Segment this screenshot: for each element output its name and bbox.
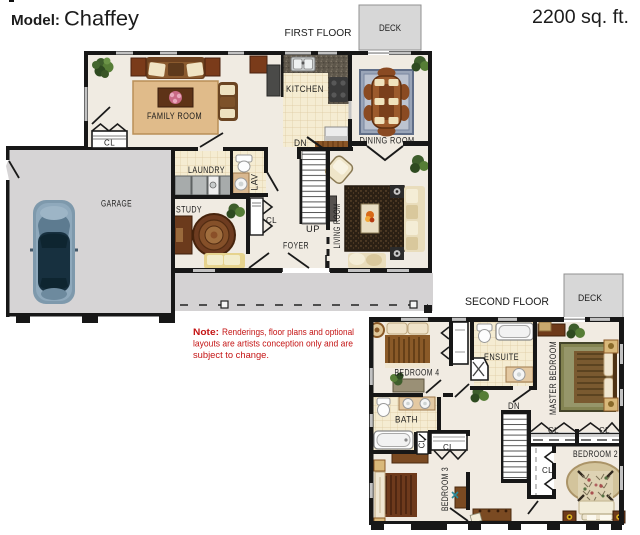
svg-text:subject to change.: subject to change. bbox=[193, 350, 269, 360]
svg-text:STUDY: STUDY bbox=[176, 205, 202, 215]
svg-text:FOYER: FOYER bbox=[283, 241, 309, 251]
svg-text:KITCHEN: KITCHEN bbox=[286, 84, 324, 94]
svg-text:CL: CL bbox=[542, 466, 553, 475]
svg-text:DECK: DECK bbox=[379, 23, 401, 33]
svg-text:LAUNDRY: LAUNDRY bbox=[188, 165, 225, 175]
svg-text:MASTER BEDROOM: MASTER BEDROOM bbox=[548, 341, 558, 415]
svg-text:SECOND FLOOR: SECOND FLOOR bbox=[465, 296, 549, 308]
svg-text:BEDROOM 3: BEDROOM 3 bbox=[440, 467, 450, 511]
svg-text:CL: CL bbox=[443, 443, 454, 452]
svg-text:CL: CL bbox=[104, 139, 115, 148]
svg-text:layouts are artists conception: layouts are artists conception only and … bbox=[193, 339, 353, 349]
svg-text:UP: UP bbox=[306, 224, 320, 234]
svg-text:Note:: Note: bbox=[193, 327, 219, 337]
svg-text:CL: CL bbox=[418, 437, 427, 448]
svg-text:DINING ROOM: DINING ROOM bbox=[360, 136, 415, 146]
svg-text:Model:: Model: bbox=[11, 12, 60, 29]
svg-text:FAMILY ROOM: FAMILY ROOM bbox=[147, 111, 202, 121]
svg-text:Chaffey: Chaffey bbox=[64, 8, 140, 31]
svg-text:CL: CL bbox=[266, 216, 277, 225]
svg-text:CL: CL bbox=[599, 426, 610, 435]
svg-text:BEDROOM 4: BEDROOM 4 bbox=[395, 368, 440, 378]
svg-text:DECK: DECK bbox=[578, 293, 602, 303]
svg-text:DN: DN bbox=[508, 401, 520, 411]
svg-text:DN: DN bbox=[294, 138, 307, 148]
svg-text:LIVING ROOM: LIVING ROOM bbox=[332, 204, 342, 249]
svg-text:GARAGE: GARAGE bbox=[101, 199, 132, 209]
svg-text:FIRST FLOOR: FIRST FLOOR bbox=[285, 27, 352, 39]
svg-text:BATH: BATH bbox=[395, 415, 418, 425]
svg-text:BEDROOM 2: BEDROOM 2 bbox=[573, 449, 618, 459]
svg-text:LAV: LAV bbox=[250, 174, 260, 191]
svg-text:2200 sq. ft.: 2200 sq. ft. bbox=[532, 6, 629, 28]
svg-text:ENSUITE: ENSUITE bbox=[484, 352, 519, 362]
svg-text:Renderings, floor plans and op: Renderings, floor plans and optional bbox=[222, 327, 354, 337]
svg-text:CL: CL bbox=[548, 426, 559, 435]
